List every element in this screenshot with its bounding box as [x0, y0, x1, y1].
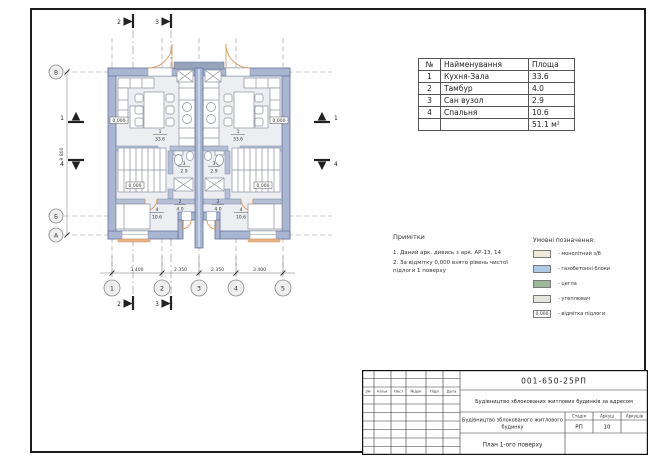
floor-plan: 3 400 2 350 2 350 3 400 9 800 1 2 3 4 5 — [30, 8, 365, 328]
doc-number: 001-650-25РП — [521, 377, 587, 386]
room-name: Тамбур — [441, 83, 529, 95]
swatch-floor-mark: 0,000 — [533, 310, 551, 318]
svg-text:33.6: 33.6 — [155, 137, 165, 143]
sheet-value: 10 — [604, 425, 611, 431]
axis-2: 2 — [160, 285, 164, 293]
legend-item: 0,000 - відмітка підлоги — [533, 310, 645, 318]
sheet-label: Аркуш — [600, 414, 614, 419]
svg-text:2: 2 — [179, 199, 182, 205]
section-2-bottom: 2 — [117, 301, 121, 308]
room-name: Спальня — [441, 107, 529, 119]
legend-item: - цегла — [533, 280, 645, 288]
title-block: Зм Кільк Лист №док Підп Дата 001-650-25Р… — [362, 370, 648, 455]
section-3-bottom: 3 — [155, 301, 159, 308]
legend-item: - монолітний з/б — [533, 250, 645, 258]
room-num: 1 — [419, 71, 441, 83]
rooms-table: № Найменування Площа 1 Кухня-Зала 33.6 2… — [418, 58, 575, 131]
elevation-mark: 0,000 — [110, 117, 128, 124]
svg-text:4: 4 — [240, 207, 243, 213]
room-num: 2 — [419, 83, 441, 95]
stage-label: Стадія — [572, 414, 586, 419]
axis-3: 3 — [197, 285, 201, 293]
svg-text:2: 2 — [217, 199, 220, 205]
section-2-top: 2 — [117, 19, 121, 26]
swatch-aerated-blocks — [533, 265, 551, 273]
svg-text:4: 4 — [156, 207, 159, 213]
svg-text:1: 1 — [159, 129, 162, 135]
svg-text:0,000: 0,000 — [129, 183, 142, 189]
svg-text:4.0: 4.0 — [214, 207, 221, 213]
dim-2-3: 2 350 — [174, 267, 187, 273]
axis-5: 5 — [281, 285, 285, 293]
table-row: 2 Тамбур 4.0 — [419, 83, 575, 95]
svg-text:4.0: 4.0 — [176, 207, 183, 213]
svg-text:0,000: 0,000 — [113, 118, 126, 124]
legend-label: - монолітний з/б — [558, 251, 601, 257]
section-4-left: 4 — [60, 161, 64, 168]
swatch-monolithic-rc — [533, 250, 551, 258]
elevation-mark: 0,000 — [126, 182, 144, 189]
sheets-label: Аркушів — [626, 414, 644, 419]
elevation-mark: 0,000 — [270, 117, 288, 124]
col-data: Дата — [447, 389, 457, 394]
note-item: 1. Даний арк. дивись з арк. АР-13, 14 — [393, 250, 511, 257]
total-empty — [419, 119, 441, 131]
legend-block: Умовні позначення: - монолітний з/б - га… — [533, 237, 645, 325]
dimension-bottom-labels: 3 400 2 350 2 350 3 400 — [131, 267, 267, 273]
axis-b: Б — [54, 214, 58, 221]
room-name: Кухня-Зала — [441, 71, 529, 83]
svg-text:33.6: 33.6 — [233, 137, 243, 143]
svg-text:3: 3 — [213, 161, 216, 167]
svg-text:10.6: 10.6 — [152, 215, 162, 221]
legend-title: Умовні позначення: — [533, 237, 645, 244]
room-area: 4.0 — [529, 83, 575, 95]
dim-4-5: 3 400 — [253, 267, 266, 273]
col-zm: Зм — [365, 389, 370, 394]
note-item: 2. За відмітку 0,000 взято рівень чистої… — [393, 260, 511, 275]
col-header-num: № — [419, 59, 441, 71]
room-num: 4 — [419, 107, 441, 119]
axis-4: 4 — [234, 285, 238, 293]
dim-1-2: 3 400 — [131, 267, 144, 273]
swatch-brick — [533, 280, 551, 288]
dim-left-label: 9 800 — [59, 147, 65, 160]
table-total-row: 51.1 м² — [419, 119, 575, 131]
legend-label: - газобетонні блоки — [558, 266, 610, 272]
col-doc: №док — [410, 389, 422, 394]
table-row: 4 Спальня 10.6 — [419, 107, 575, 119]
object-name-line2: будинку — [502, 425, 524, 431]
axis-v: В — [54, 70, 58, 77]
legend-item: - газобетонні блоки — [533, 265, 645, 273]
dimension-bottom — [100, 256, 295, 277]
svg-text:10.6: 10.6 — [236, 215, 246, 221]
section-4-right: 4 — [334, 161, 338, 168]
section-3-top: 3 — [155, 19, 159, 26]
room-num: 3 — [419, 95, 441, 107]
drawing-name: План 1-ого поверху — [483, 443, 543, 449]
table-row: 3 Сан вузол 2.9 — [419, 95, 575, 107]
room-area: 10.6 — [529, 107, 575, 119]
total-area: 51.1 м² — [529, 119, 575, 131]
stage-value: РП — [575, 425, 582, 431]
svg-text:0,000: 0,000 — [273, 118, 286, 124]
swatch-insulation — [533, 295, 551, 303]
col-pidp: Підп — [430, 389, 440, 394]
legend-item: - утеплювач — [533, 295, 645, 303]
notes-title: Примітки — [393, 233, 511, 241]
room-name: Сан вузол — [441, 95, 529, 107]
table-row: 1 Кухня-Зала 33.6 — [419, 71, 575, 83]
col-header-name: Найменування — [441, 59, 529, 71]
legend-label: - утеплювач — [558, 296, 590, 302]
svg-text:2.9: 2.9 — [180, 169, 187, 175]
notes-block: Примітки 1. Даний арк. дивись з арк. АР-… — [393, 233, 511, 278]
elevation-mark: 0,000 — [254, 182, 272, 189]
room-area: 2.9 — [529, 95, 575, 107]
col-lyst: Лист — [394, 389, 404, 394]
project-name: Будівництво зблокованих житлових будинкі… — [475, 399, 633, 405]
svg-text:0,000: 0,000 — [257, 183, 270, 189]
svg-text:3: 3 — [183, 161, 186, 167]
drawing-sheet: 3 400 2 350 2 350 3 400 9 800 1 2 3 4 5 — [0, 0, 655, 463]
svg-text:2.9: 2.9 — [210, 169, 217, 175]
dim-3-4: 2 350 — [211, 267, 224, 273]
section-1-left: 1 — [60, 115, 64, 122]
section-1-right: 1 — [334, 115, 338, 122]
object-name-line1: Будівництво зблокованого житлового — [462, 418, 563, 424]
legend-label: - цегла — [558, 281, 577, 287]
rooms-table-header: № Найменування Площа — [419, 59, 575, 71]
axis-1: 1 — [110, 285, 114, 293]
room-area: 33.6 — [529, 71, 575, 83]
total-empty — [441, 119, 529, 131]
col-header-area: Площа — [529, 59, 575, 71]
svg-text:1: 1 — [237, 129, 240, 135]
col-kilk: Кільк — [377, 389, 388, 394]
legend-label: - відмітка підлоги — [558, 311, 605, 317]
